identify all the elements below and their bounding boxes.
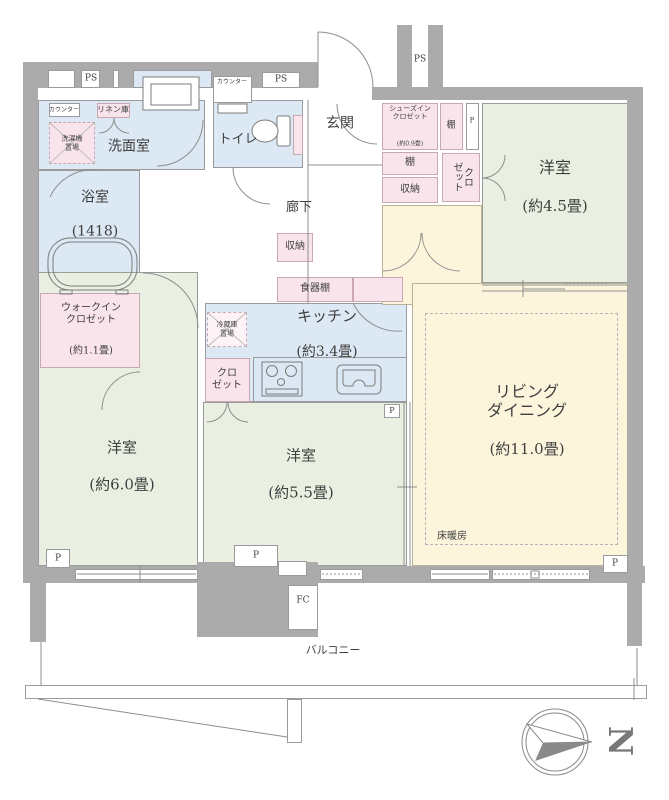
pipe-slot <box>466 103 479 150</box>
wall-right <box>627 87 643 566</box>
label-storage-corridor: 収納 <box>285 241 305 253</box>
compass <box>522 709 592 775</box>
window-ld-1 <box>430 569 490 580</box>
window-west <box>75 569 198 580</box>
label-shelf-mid: 棚 <box>405 157 415 169</box>
label-floor-heating: 床暖房 <box>437 531 467 543</box>
label-wic-name: ウォークイン クロゼット <box>61 302 121 326</box>
window-ld-2 <box>492 569 590 580</box>
floor-plan: 洗面室 浴室 (1418) トイレ 玄関 廊下 シューズイン クロゼット (約0… <box>0 0 669 800</box>
label-western-6-0-size: (約6.0畳) <box>89 476 155 494</box>
label-western-5-5-size: (約5.5畳) <box>268 484 334 502</box>
label-p-kitchen: P <box>389 406 394 416</box>
label-fc: FC <box>296 596 309 607</box>
label-p-balcony-center: P <box>253 551 259 562</box>
toilet-side-panel <box>293 115 303 155</box>
label-western-5-5-name: 洋室 <box>268 446 334 464</box>
label-p-shoes: P <box>470 117 475 126</box>
label-western-4-5-name: 洋室 <box>522 157 588 177</box>
ps-shaft-right <box>428 25 443 88</box>
wall-stub-left <box>30 583 46 642</box>
label-balcony: バルコニー <box>306 643 361 656</box>
label-western-4-5: 洋室 (約4.5畳) <box>522 138 588 234</box>
label-western-5-5: 洋室 (約5.5畳) <box>268 426 334 521</box>
compass-inner-ring <box>526 713 584 771</box>
label-p-balcony-left: P <box>55 554 61 565</box>
label-bath-name: 浴室 <box>72 189 119 206</box>
label-ps-right: PS <box>414 55 426 66</box>
label-fridge: 冷蔵庫 置場 <box>217 320 238 337</box>
p-box-center-step <box>278 561 307 576</box>
label-entrance: 玄関 <box>326 115 354 132</box>
label-linen: リネン庫 <box>97 105 129 115</box>
label-living-dining-size: (約11.0畳) <box>487 440 567 458</box>
label-western-4-5-size: (約4.5畳) <box>522 196 588 214</box>
label-cupboard: 食器棚 <box>300 283 330 295</box>
label-wic: ウォークイン クロゼット (約1.1畳) <box>61 282 121 377</box>
label-closet-kitchen: クロ ゼット <box>212 368 242 392</box>
balcony-partition <box>287 699 302 743</box>
label-shoes-closet: シューズイン クロゼット (約0.9畳) <box>389 85 431 168</box>
toilet-door-arc <box>233 167 270 204</box>
label-toilet: トイレ <box>218 132 257 148</box>
wall-stub-right <box>627 583 642 646</box>
label-shelf-top: 棚 <box>446 121 455 132</box>
label-western-6-0-name: 洋室 <box>89 438 155 456</box>
compass-needle-light <box>527 724 592 743</box>
label-ps-mid: PS <box>275 75 287 86</box>
label-corridor: 廊下 <box>286 200 312 216</box>
label-bath-size: (1418) <box>72 224 119 241</box>
label-western-6-0: 洋室 (約6.0畳) <box>89 418 155 513</box>
compass-needle-dark <box>535 742 592 761</box>
label-counter-toilet: カウンター <box>217 78 247 85</box>
basin-alcove <box>133 70 212 88</box>
label-p-balcony-right: P <box>612 559 618 570</box>
label-living-dining-name: リビング ダイニング <box>487 382 567 421</box>
label-kitchen-size: (約3.4畳) <box>296 344 357 361</box>
label-kitchen-name: キッチン <box>296 307 357 325</box>
label-washer: 洗濯機 置場 <box>62 134 83 151</box>
balcony-railing <box>25 685 647 699</box>
balcony-diagonal <box>38 699 287 737</box>
wall-left <box>23 88 38 566</box>
label-wic-size: (約1.1畳) <box>61 346 121 358</box>
entrance-door-arc <box>318 32 373 87</box>
window-55 <box>320 569 363 580</box>
north-letter: N <box>598 720 640 762</box>
ps-shaft-left <box>397 25 412 88</box>
label-living-dining: リビング ダイニング (約11.0畳) <box>487 362 567 478</box>
label-ps-left: PS <box>85 74 97 85</box>
label-closet-hall: クロ ゼット <box>451 162 472 192</box>
label-washroom: 洗面室 <box>108 138 150 155</box>
label-counter-washroom: カウンター <box>49 106 79 113</box>
label-storage-hall: 収納 <box>400 184 420 196</box>
compass-outer-ring <box>522 709 588 775</box>
label-kitchen: キッチン (約3.4畳) <box>296 287 357 381</box>
fc-box <box>288 585 318 630</box>
label-bath: 浴室 (1418) <box>72 172 119 257</box>
cupboard-extension <box>353 277 403 302</box>
wall-slot <box>113 70 119 88</box>
meter-box <box>48 70 75 88</box>
label-shoes-closet-name: シューズイン クロゼット <box>389 104 431 121</box>
label-shoes-closet-size: (約0.9畳) <box>389 141 431 148</box>
